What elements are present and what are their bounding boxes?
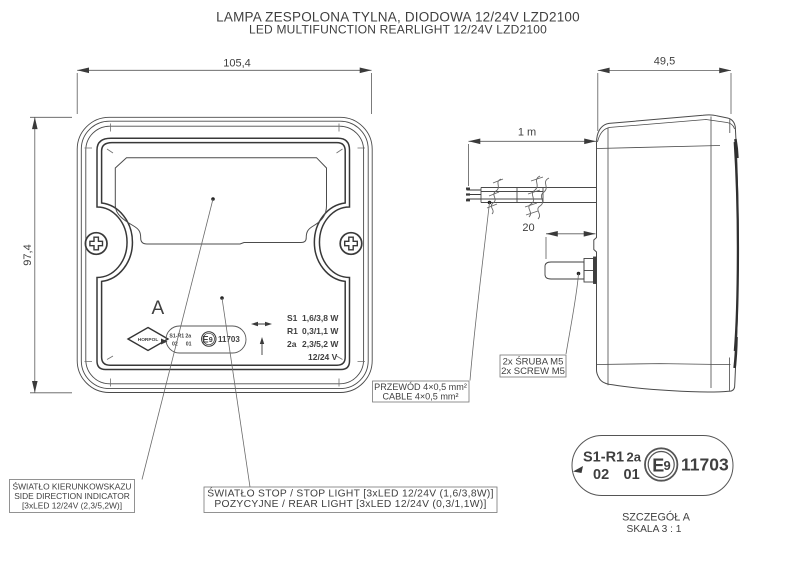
svg-text:02: 02 <box>593 467 609 483</box>
svg-text:20: 20 <box>522 222 534 234</box>
svg-text:HORPOL: HORPOL <box>138 337 159 343</box>
svg-text:2a: 2a <box>287 339 297 349</box>
svg-text:2a: 2a <box>185 334 191 340</box>
svg-text:1 m: 1 m <box>518 127 536 139</box>
svg-text:9: 9 <box>209 335 213 344</box>
svg-text:LED MULTIFUNCTION REARLIGHT 12: LED MULTIFUNCTION REARLIGHT 12/24V LZD21… <box>249 23 547 37</box>
svg-text:ŚWIATŁO STOP / STOP LIGHT [3xL: ŚWIATŁO STOP / STOP LIGHT [3xLED 12/24V … <box>207 487 494 500</box>
svg-text:R1: R1 <box>287 326 298 336</box>
svg-text:CABLE 4×0,5 mm²: CABLE 4×0,5 mm² <box>382 392 458 402</box>
svg-text:0,3/1,1 W: 0,3/1,1 W <box>302 326 339 336</box>
svg-text:[3xLED 12/24V (2,3/5,2W)]: [3xLED 12/24V (2,3/5,2W)] <box>22 501 122 511</box>
svg-text:2x SCREW M5: 2x SCREW M5 <box>501 366 565 377</box>
svg-text:POZYCYJNE / REAR LIGHT [3xLED: POZYCYJNE / REAR LIGHT [3xLED 12/24V (0,… <box>214 499 486 510</box>
svg-text:11703: 11703 <box>681 455 729 475</box>
svg-text:A: A <box>152 298 165 319</box>
svg-text:E: E <box>652 456 664 476</box>
svg-text:SZCZEGÓŁ A: SZCZEGÓŁ A <box>622 511 691 524</box>
svg-text:2,3/5,2 W: 2,3/5,2 W <box>302 339 339 349</box>
svg-text:S1-R1: S1-R1 <box>583 450 624 466</box>
svg-text:49,5: 49,5 <box>654 56 675 68</box>
svg-text:SIDE DIRECTION INDICATOR: SIDE DIRECTION INDICATOR <box>14 491 130 501</box>
svg-text:E: E <box>202 335 208 345</box>
svg-text:12/24 V: 12/24 V <box>308 352 338 362</box>
svg-text:9: 9 <box>664 458 671 473</box>
svg-text:S1-R1: S1-R1 <box>169 334 184 340</box>
svg-text:PRZEWÓD 4×0,5 mm²: PRZEWÓD 4×0,5 mm² <box>374 382 467 392</box>
svg-text:01: 01 <box>186 342 192 348</box>
svg-text:01: 01 <box>624 467 640 483</box>
svg-text:2a: 2a <box>627 450 642 465</box>
svg-text:1,6/3,8 W: 1,6/3,8 W <box>302 313 339 323</box>
svg-text:ŚWIATŁO KIERUNKOWSKAZU: ŚWIATŁO KIERUNKOWSKAZU <box>13 481 132 492</box>
svg-text:97,4: 97,4 <box>22 244 34 265</box>
svg-text:S1: S1 <box>287 313 298 323</box>
svg-text:105,4: 105,4 <box>223 58 251 70</box>
svg-text:SKALA 3 : 1: SKALA 3 : 1 <box>627 524 682 535</box>
svg-text:11703: 11703 <box>218 335 240 344</box>
